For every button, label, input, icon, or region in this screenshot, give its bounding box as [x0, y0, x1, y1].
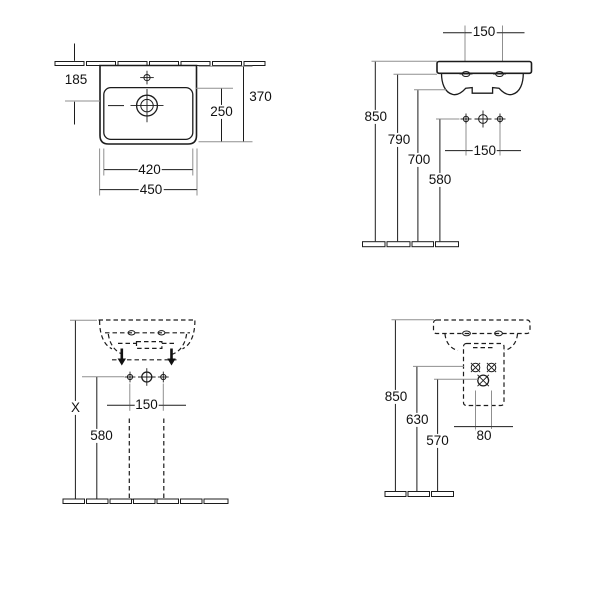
dim-label-580-pedestal: 580 [89, 429, 114, 443]
dim-630 [413, 366, 464, 491]
dim-label-420: 420 [137, 162, 162, 176]
floor-line-pedestal-side [385, 492, 454, 497]
dim-850-pedestal-side [392, 320, 435, 491]
dim-label-150-pedestal: 150 [134, 398, 159, 412]
mounting-direction-arrows [118, 349, 176, 366]
basin-rim-side [437, 62, 532, 74]
floor-line-pedestal-front [63, 499, 228, 504]
dim-label-80: 80 [475, 429, 492, 443]
dim-label-X: X [70, 400, 81, 414]
wall-fitting-holes-symbol-front [82, 368, 169, 386]
floor-line-side [363, 242, 459, 247]
dim-label-185: 185 [64, 73, 89, 87]
basin-body-side [442, 73, 524, 94]
wall-fitting-holes-symbol [436, 111, 506, 128]
dim-label-630: 630 [405, 413, 430, 427]
dim-label-580-side: 580 [428, 173, 453, 187]
basin-hidden-outline-side [434, 320, 531, 350]
dim-label-850-side: 850 [364, 110, 389, 124]
dim-label-450: 450 [139, 182, 164, 196]
drawing-linework [0, 0, 600, 600]
side-pedestal-view [385, 320, 530, 497]
dim-label-700: 700 [407, 153, 432, 167]
technical-drawing-sheet: 185 370 250 420 450 150 850 790 700 580 … [0, 0, 600, 600]
dim-label-150-holes: 150 [473, 144, 498, 158]
dim-80 [454, 391, 513, 431]
pedestal-hidden-outline-front [129, 419, 164, 500]
dim-label-370: 370 [248, 89, 273, 103]
dim-label-250: 250 [209, 104, 234, 118]
dim-label-570: 570 [425, 434, 450, 448]
dim-label-790: 790 [387, 133, 412, 147]
basin-hidden-outline-front [99, 320, 196, 360]
siphon-fixing-holes-symbol [471, 363, 496, 386]
dim-label-150-faucet: 150 [472, 25, 497, 39]
dim-label-850-pedestal-side: 850 [384, 390, 409, 404]
